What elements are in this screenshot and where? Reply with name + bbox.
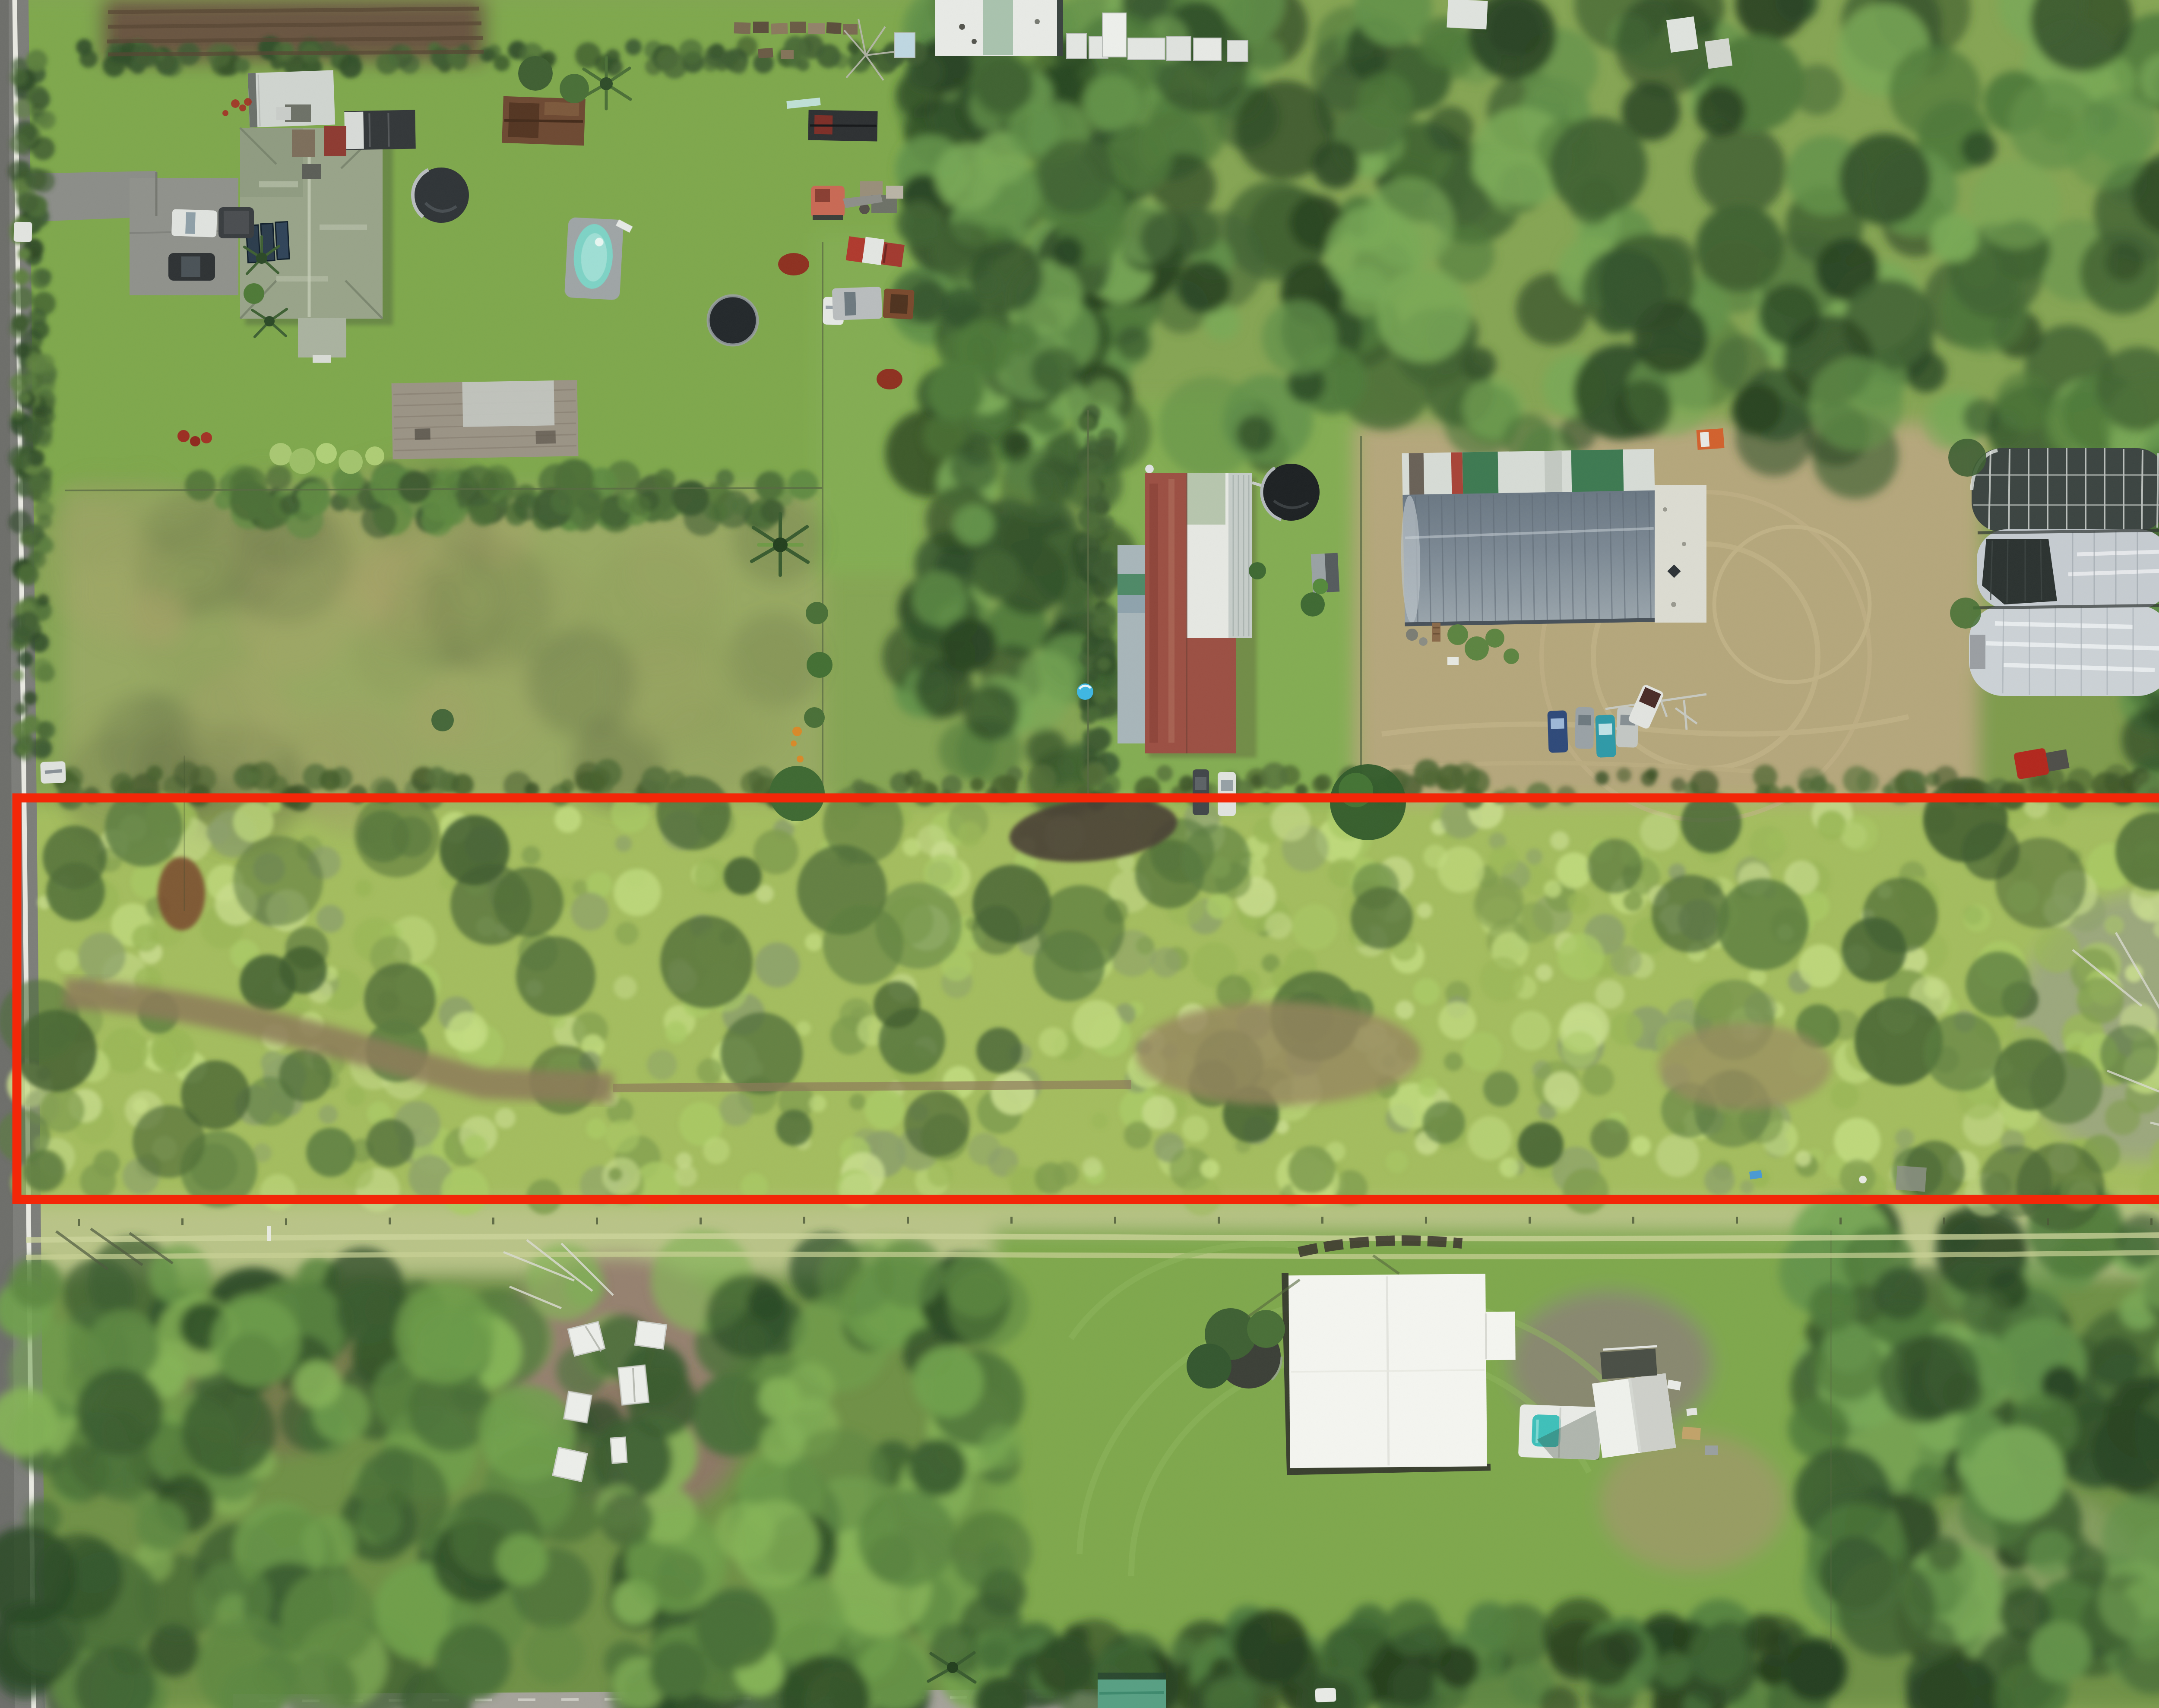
photo-grain <box>0 0 2159 1708</box>
aerial-photo-canvas <box>0 0 2159 1708</box>
aerial-photo <box>0 0 2159 1708</box>
